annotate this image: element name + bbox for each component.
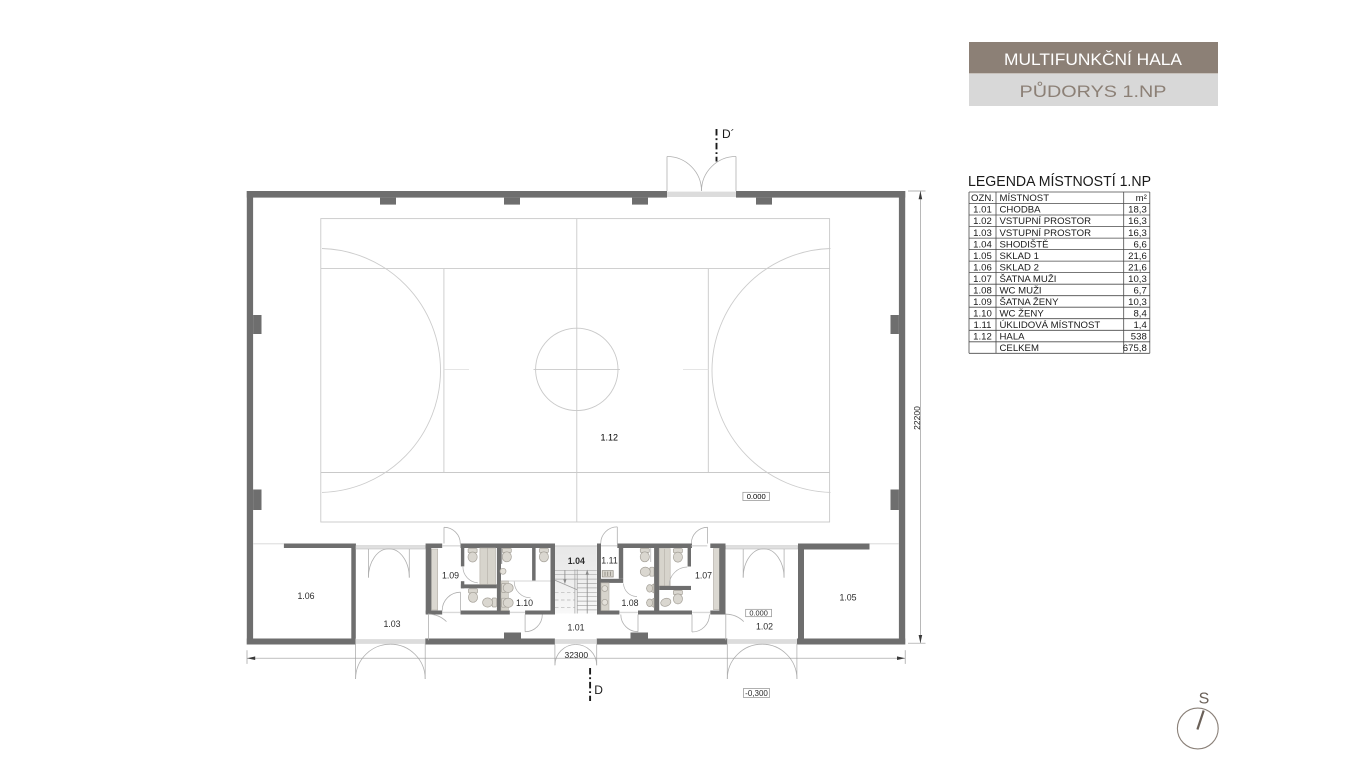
svg-text:ŠATNA MUŽI: ŠATNA MUŽI xyxy=(1000,274,1057,285)
svg-text:LEGENDA MÍSTNOSTÍ 1.NP: LEGENDA MÍSTNOSTÍ 1.NP xyxy=(968,173,1151,190)
svg-text:1.07: 1.07 xyxy=(695,571,712,581)
svg-text:1.06: 1.06 xyxy=(973,262,992,273)
svg-text:MULTIFUNKČNÍ HALA: MULTIFUNKČNÍ HALA xyxy=(1004,50,1182,69)
svg-text:HALA: HALA xyxy=(1000,332,1026,343)
svg-text:SHODIŠTĚ: SHODIŠTĚ xyxy=(1000,239,1049,250)
svg-text:0.000: 0.000 xyxy=(749,609,768,618)
svg-text:-0,300: -0,300 xyxy=(745,689,768,698)
svg-text:16,3: 16,3 xyxy=(1128,216,1147,227)
svg-text:m²: m² xyxy=(1136,193,1148,204)
svg-text:1.12: 1.12 xyxy=(973,332,992,343)
svg-text:1.12: 1.12 xyxy=(601,433,619,443)
svg-text:1.11: 1.11 xyxy=(601,556,618,566)
svg-text:SKLAD 2: SKLAD 2 xyxy=(1000,262,1039,273)
svg-text:6,6: 6,6 xyxy=(1133,239,1146,250)
svg-text:PŮDORYS 1.NP: PŮDORYS 1.NP xyxy=(1020,82,1167,101)
svg-text:1.09: 1.09 xyxy=(973,297,992,308)
svg-text:1.03: 1.03 xyxy=(973,228,992,239)
svg-text:32300: 32300 xyxy=(564,650,588,660)
svg-text:1.07: 1.07 xyxy=(973,274,992,285)
svg-text:1.05: 1.05 xyxy=(839,593,856,603)
svg-text:1.11: 1.11 xyxy=(974,320,992,331)
svg-text:1.01: 1.01 xyxy=(567,623,584,633)
svg-text:1.10: 1.10 xyxy=(516,598,533,608)
svg-text:WC ŽENY: WC ŽENY xyxy=(1000,308,1045,319)
svg-text:1.05: 1.05 xyxy=(973,251,992,262)
svg-text:1.08: 1.08 xyxy=(973,285,992,296)
svg-text:VSTUPNÍ PROSTOR: VSTUPNÍ PROSTOR xyxy=(1000,216,1092,227)
svg-text:1.02: 1.02 xyxy=(756,622,773,632)
svg-text:10,3: 10,3 xyxy=(1128,274,1147,285)
svg-text:1.04: 1.04 xyxy=(568,556,585,566)
svg-text:CHODBA: CHODBA xyxy=(1000,205,1042,216)
svg-text:1.01: 1.01 xyxy=(973,205,992,216)
svg-text:0.000: 0.000 xyxy=(747,492,766,501)
svg-text:1.08: 1.08 xyxy=(621,598,638,608)
svg-text:6,7: 6,7 xyxy=(1133,285,1146,296)
svg-text:D: D xyxy=(594,683,603,697)
svg-text:675,8: 675,8 xyxy=(1123,343,1147,354)
svg-text:1.02: 1.02 xyxy=(973,216,992,227)
svg-text:8,4: 8,4 xyxy=(1133,308,1147,319)
svg-text:538: 538 xyxy=(1131,332,1147,343)
svg-text:1.04: 1.04 xyxy=(973,239,992,250)
svg-text:1.09: 1.09 xyxy=(442,571,459,581)
svg-text:VSTUPNÍ PROSTOR: VSTUPNÍ PROSTOR xyxy=(1000,228,1092,239)
svg-text:10,3: 10,3 xyxy=(1128,297,1147,308)
svg-text:CELKEM: CELKEM xyxy=(1000,343,1039,354)
svg-text:MÍSTNOST: MÍSTNOST xyxy=(1000,193,1050,204)
svg-text:WC MUŽI: WC MUŽI xyxy=(1000,285,1042,296)
svg-text:ÚKLIDOVÁ MÍSTNOST: ÚKLIDOVÁ MÍSTNOST xyxy=(1000,320,1101,331)
svg-text:S: S xyxy=(1199,691,1210,708)
svg-text:1.03: 1.03 xyxy=(383,619,400,629)
svg-text:21,6: 21,6 xyxy=(1128,251,1147,262)
svg-text:1.10: 1.10 xyxy=(973,308,992,319)
svg-text:ŠATNA ŽENY: ŠATNA ŽENY xyxy=(1000,297,1060,308)
svg-text:18,3: 18,3 xyxy=(1128,205,1147,216)
svg-text:1,4: 1,4 xyxy=(1133,320,1147,331)
svg-text:D´: D´ xyxy=(722,127,735,141)
svg-text:16,3: 16,3 xyxy=(1128,228,1147,239)
svg-text:22200: 22200 xyxy=(912,406,922,430)
svg-text:21,6: 21,6 xyxy=(1128,262,1147,273)
svg-text:SKLAD 1: SKLAD 1 xyxy=(1000,251,1039,262)
svg-text:OZN.: OZN. xyxy=(971,193,994,204)
svg-text:1.06: 1.06 xyxy=(297,591,314,601)
